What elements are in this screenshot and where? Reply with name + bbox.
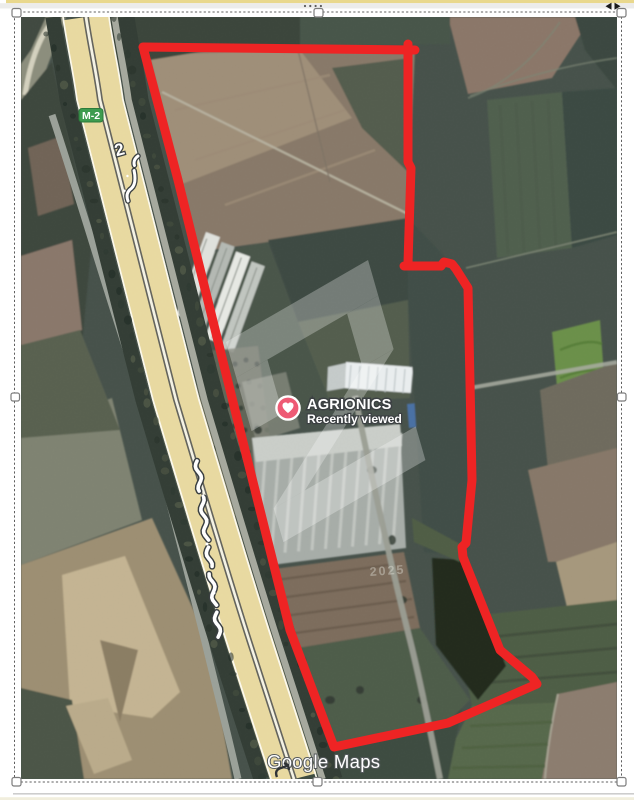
svg-text:2025: 2025 [369, 563, 406, 579]
svg-text:M-2: M-2 [82, 110, 100, 122]
svg-text:Google Maps: Google Maps [267, 751, 380, 772]
svg-text:Recently viewed: Recently viewed [307, 412, 402, 426]
svg-text:AGRIONICS: AGRIONICS [307, 397, 392, 413]
